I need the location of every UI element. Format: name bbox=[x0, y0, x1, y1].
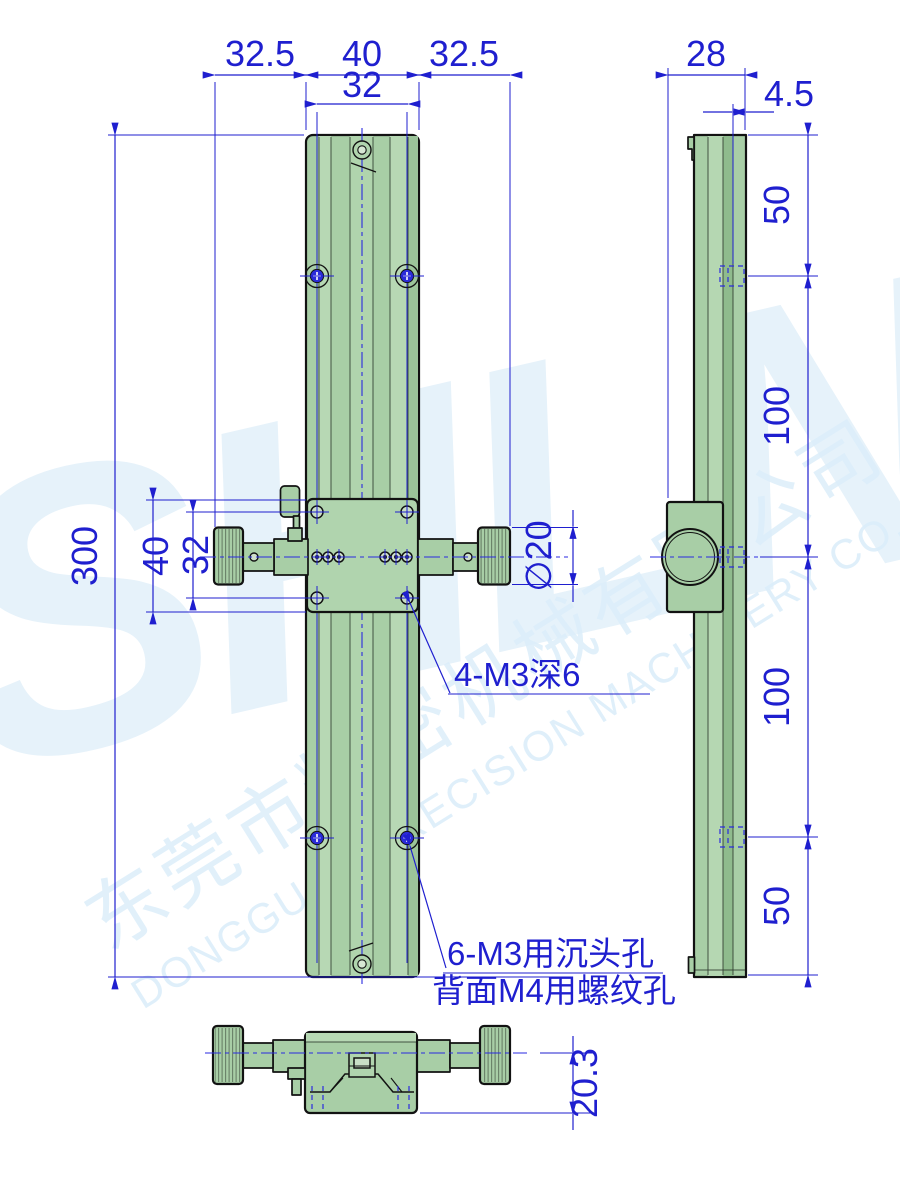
note-6-m3-line2: 背面M4用螺纹孔 bbox=[432, 972, 676, 1009]
bottom-view bbox=[205, 1026, 527, 1113]
dim-carriage-40: 40 bbox=[135, 536, 176, 576]
bv-lock-lever bbox=[288, 1068, 305, 1095]
dim-20_3: 20.3 bbox=[564, 1048, 605, 1118]
dim-300: 300 bbox=[64, 526, 105, 586]
dim-28: 28 bbox=[686, 33, 726, 74]
technical-drawing: SHLN 东莞市精密机械有限公司 DONGGUAN PRECISION MACH… bbox=[0, 0, 900, 1181]
dim-100-upper: 100 bbox=[756, 386, 797, 446]
dim-4_5: 4.5 bbox=[764, 73, 814, 114]
dim-top-32_5-right: 32.5 bbox=[429, 33, 499, 74]
dim-top-32_5-left: 32.5 bbox=[225, 33, 295, 74]
side-bottom-tab bbox=[689, 957, 695, 973]
drawing-canvas: SHLN 东莞市精密机械有限公司 DONGGUAN PRECISION MACH… bbox=[0, 0, 900, 1181]
dim-carriage-32: 32 bbox=[175, 535, 216, 575]
dim-100-lower: 100 bbox=[756, 667, 797, 727]
dim-top-32: 32 bbox=[342, 64, 382, 105]
dim-50-bottom: 50 bbox=[756, 886, 797, 926]
side-top-tab bbox=[688, 137, 694, 160]
bv-right-knob-assembly bbox=[417, 1026, 510, 1084]
dim-phi20: ∅20 bbox=[518, 520, 559, 591]
note-4-m3: 4-M3深6 bbox=[454, 656, 581, 693]
note-6-m3-line1: 6-M3用沉头孔 bbox=[447, 935, 654, 972]
dim-50-top: 50 bbox=[756, 185, 797, 225]
annotation-rail-holes: 6-M3用沉头孔 背面M4用螺纹孔 bbox=[410, 846, 676, 1009]
